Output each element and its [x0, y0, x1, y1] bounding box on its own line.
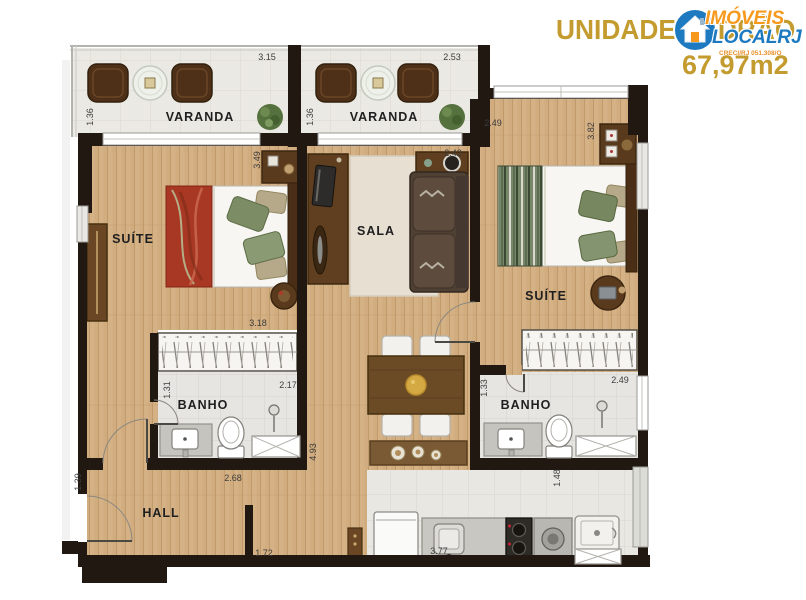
round-table-icon [361, 66, 395, 100]
bathroom-sink-icon [484, 423, 542, 456]
dim-closet-left-w: 3.18 [249, 318, 267, 328]
floorplan-drawing: VARANDA VARANDA SUÍTE SALA SUÍTE BANHO B… [0, 0, 806, 600]
window [637, 143, 648, 209]
dim-cozinha-w: 3.77 [430, 546, 448, 556]
toilet-icon [218, 417, 244, 458]
plant-icon [439, 104, 465, 130]
dining-furniture [368, 336, 467, 465]
armchair-icon [316, 64, 356, 102]
dim-banho-left-w: 2.17 [279, 380, 297, 390]
room-label-varanda-left: VARANDA [166, 110, 235, 124]
window [318, 133, 462, 145]
door-gap [506, 365, 522, 375]
agency-logo: IMÓVEIS LOCALRJ CRECI/RJ 051.308/O [672, 4, 806, 70]
window [103, 133, 260, 145]
counter-bar-icon [370, 441, 467, 465]
window [494, 86, 628, 98]
dim-hall-w: 2.68 [224, 473, 242, 483]
tv-cabinet-icon [308, 154, 348, 284]
room-label-suite-left: SUÍTE [112, 231, 154, 246]
logo-creci-text: CRECI/RJ 051.308/O [719, 50, 782, 57]
laundry-mat-icon [575, 549, 621, 564]
stool-icon [271, 283, 297, 309]
wardrobe-tall-icon [87, 224, 107, 321]
floorplan-page: UNIDADE PADRÃO 67,97m2 IMÓVEIS LOCALRJ C… [0, 0, 806, 600]
room-label-sala: SALA [357, 224, 395, 238]
plant-icon [257, 104, 283, 130]
service-window [633, 467, 648, 547]
room-label-banho-left: BANHO [178, 398, 229, 412]
logo-text-localrj: LOCALRJ [712, 27, 802, 49]
dim-banho-right-w: 2.49 [611, 375, 629, 385]
fridge-icon [374, 512, 418, 558]
room-label-suite-right: SUÍTE [525, 288, 567, 303]
dim-varanda-mid-w: 2.53 [443, 52, 461, 62]
armchair-icon [398, 64, 438, 102]
armchair-icon [172, 64, 212, 102]
round-table-icon [133, 66, 167, 100]
dim-varanda-mid-h: 1.36 [305, 108, 315, 126]
wardrobe-right-icon [522, 330, 637, 370]
wardrobe-left-icon [158, 333, 297, 371]
window [637, 376, 648, 430]
dining-chair-icon [382, 414, 412, 436]
armchair-icon [88, 64, 128, 102]
dim-living-h: 4.93 [308, 443, 318, 461]
window [77, 206, 88, 242]
dining-chair-icon [420, 414, 450, 436]
washer-icon [534, 518, 572, 560]
room-label-varanda-mid: VARANDA [350, 110, 419, 124]
dim-cozinha-h: 1.48 [552, 469, 562, 487]
dim-suite-right-w: 2.49 [484, 118, 502, 128]
bed-icon [166, 180, 299, 292]
bathroom-sink-icon [160, 424, 212, 457]
dim-sala-w: 2.42 [444, 148, 462, 158]
stove-icon [506, 518, 532, 560]
shower-box-icon [576, 436, 636, 456]
dim-hall-h: 1.39 [73, 473, 83, 491]
door-gap [470, 302, 480, 342]
room-label-hall: HALL [142, 506, 179, 520]
sofa-icon [410, 172, 468, 292]
dining-chair-icon [382, 336, 412, 358]
laundry-tank-icon [575, 516, 619, 552]
dim-hall-door: 1.72 [255, 548, 273, 558]
bed-icon [498, 160, 637, 272]
dim-suite-left-h: 3.49 [252, 151, 262, 169]
dining-table-icon [368, 356, 464, 414]
toilet-icon [546, 415, 572, 458]
plan-shadow [62, 60, 70, 540]
dim-suite-right-h: 3.82 [586, 122, 596, 140]
dim-varanda-left-w: 3.15 [258, 52, 276, 62]
round-table-icon [591, 276, 626, 310]
shower-box-icon [252, 436, 300, 457]
dim-banho-left-h: 1.31 [162, 381, 172, 399]
room-label-banho-right: BANHO [501, 398, 552, 412]
dim-banho-right-h: 1.33 [479, 379, 489, 397]
dim-varanda-left-h: 1.36 [85, 108, 95, 126]
door-gap-entrance [78, 494, 87, 542]
nightstand-icon [262, 151, 300, 183]
